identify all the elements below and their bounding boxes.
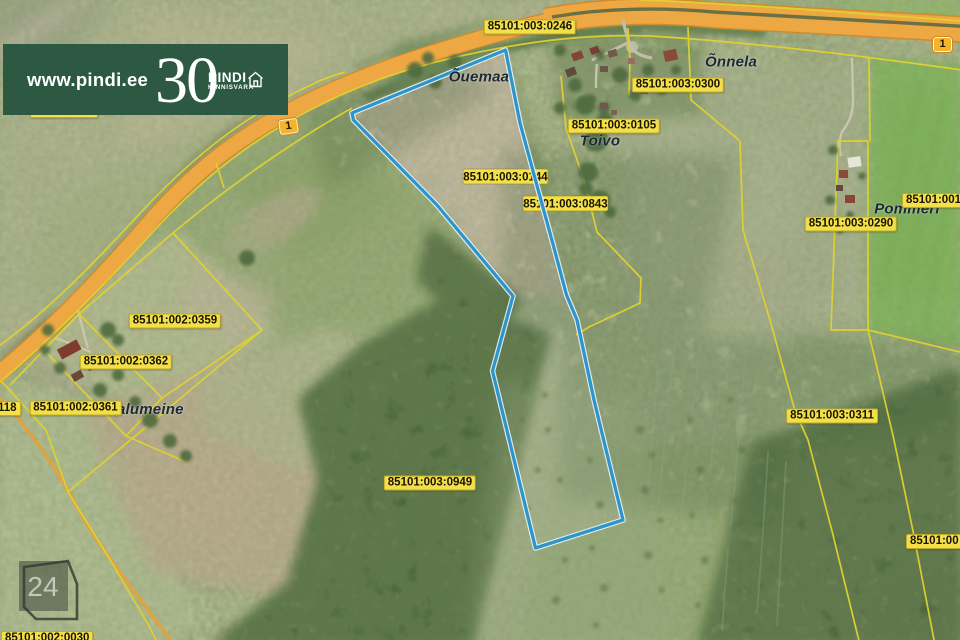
svg-text:24: 24 <box>27 571 58 602</box>
